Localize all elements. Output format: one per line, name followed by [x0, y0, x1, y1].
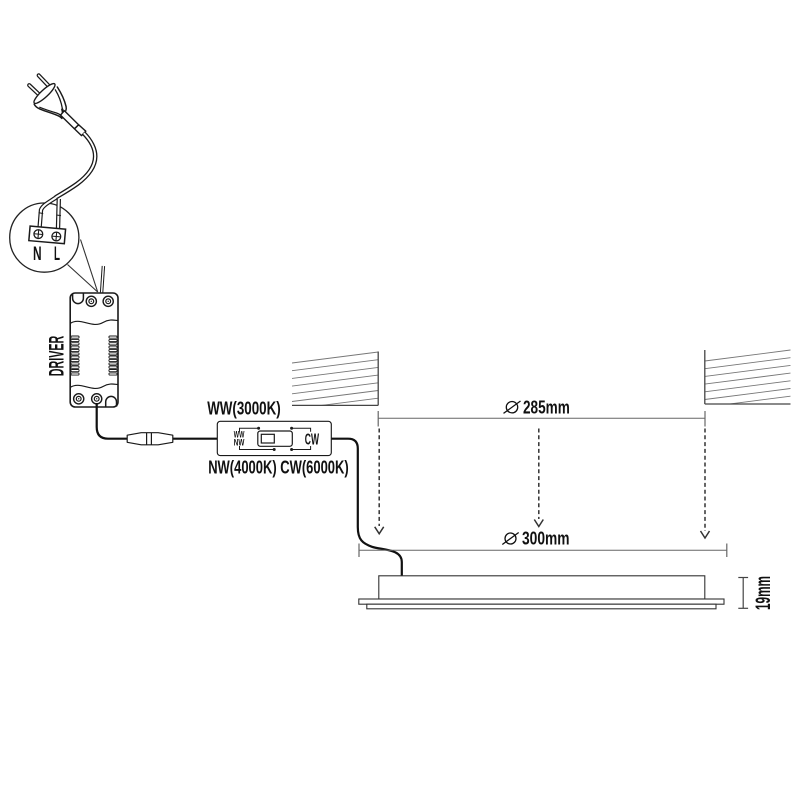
svg-text:NW(4000K) CW(6000K): NW(4000K) CW(6000K): [208, 457, 349, 478]
svg-text:DRIVER: DRIVER: [45, 336, 68, 377]
svg-text:300mm: 300mm: [522, 529, 570, 549]
svg-text:L: L: [54, 244, 60, 265]
svg-text:WW(3000K): WW(3000K): [207, 398, 281, 419]
svg-text:CW: CW: [305, 431, 320, 448]
svg-text:285mm: 285mm: [523, 397, 570, 417]
svg-text:19mm: 19mm: [752, 576, 775, 610]
svg-text:NW: NW: [234, 437, 245, 447]
svg-text:N: N: [33, 244, 42, 265]
